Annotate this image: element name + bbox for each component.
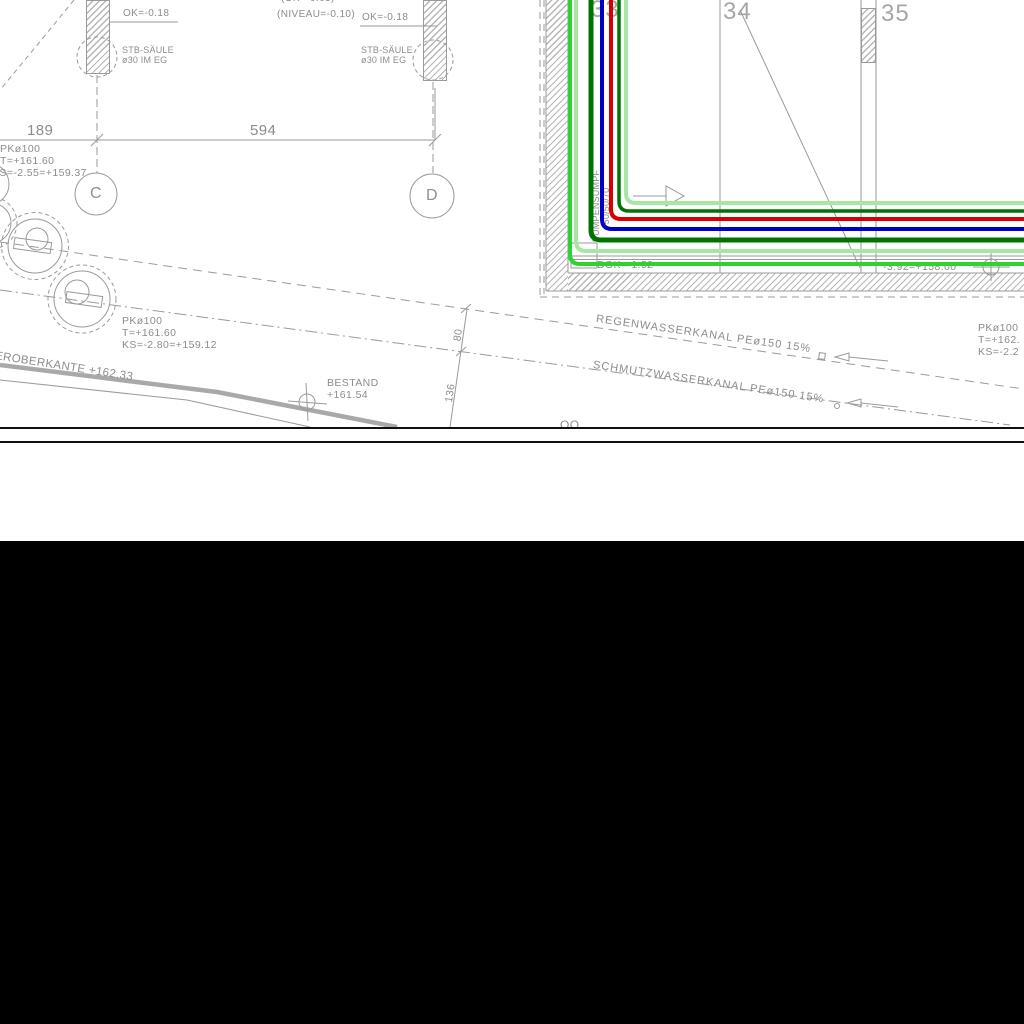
dimension-c-d <box>0 88 441 146</box>
viewer-background <box>0 541 1024 1024</box>
column-mid-size-label: ø30 IM EG <box>361 55 406 65</box>
note-niveau: (NIVEAU=-0.10) <box>277 9 355 21</box>
column-left-type-label: STB-SÄULE <box>122 45 174 55</box>
column-left-ok-label: OK=-0.18 <box>123 8 169 20</box>
note-top-clipped: (OK=-0.63) <box>281 0 335 5</box>
manhole2-ks-label: KS=-2.80=+159.12 <box>122 339 217 351</box>
dimension-189: 189 <box>27 122 53 139</box>
dimension-80: 80 <box>451 328 465 342</box>
manhole3-t-label: T=+162. <box>978 334 1020 346</box>
bestand-survey-point <box>288 383 327 421</box>
column-left-size-label: ø30 IM EG <box>122 55 167 65</box>
page-border-line-top <box>0 427 1024 429</box>
axis-d-label: D <box>426 187 438 205</box>
bestand-elevation-label: +161.54 <box>327 389 368 401</box>
manhole2-pk-label: PKø100 <box>122 315 162 327</box>
column-mid-type-label: STB-SÄULE <box>361 45 413 55</box>
manholes <box>0 197 116 333</box>
manhole2-t-label: T=+161.60 <box>122 327 176 339</box>
dimension-80-136 <box>450 304 471 427</box>
axis-c-label: C <box>90 185 102 203</box>
manhole1-ks-label: KS=-2.55=+159.37 <box>0 167 87 179</box>
manhole3-pk-label: PKø100 <box>978 322 1018 334</box>
manhole1-t-label: T=+161.60 <box>0 155 54 167</box>
manhole3-ks-label: KS=-2.2 <box>978 346 1019 358</box>
column-mid-ok-label: OK=-0.18 <box>362 12 408 24</box>
page-border-line-bottom <box>0 441 1024 443</box>
cad-viewer-canvas: 33 34 35 DOK=-1.52 -3.92=+158.00 PUMPENS… <box>0 0 1024 1024</box>
manhole1-pk-label: PKø100 <box>0 143 40 155</box>
bestand-label: BESTAND <box>327 377 379 389</box>
dimension-594: 594 <box>250 122 276 139</box>
pit-survey-point <box>973 253 1010 281</box>
plan-linework <box>0 0 1024 445</box>
